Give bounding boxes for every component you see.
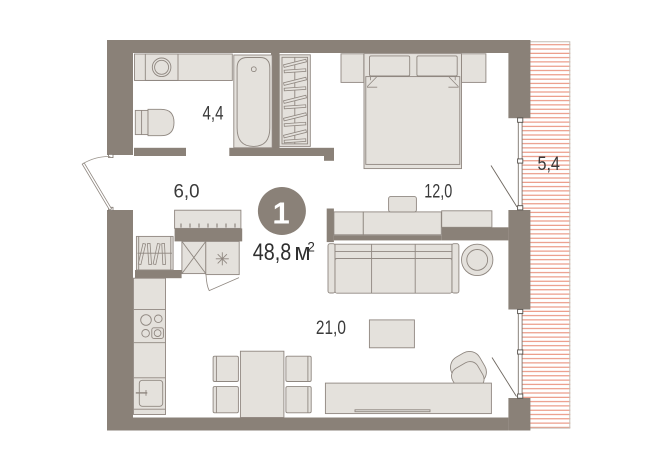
svg-text:12,0: 12,0 <box>424 181 452 203</box>
svg-text:6,0: 6,0 <box>174 181 200 203</box>
svg-text:5,4: 5,4 <box>537 153 560 175</box>
svg-text:2: 2 <box>307 240 315 255</box>
svg-text:1: 1 <box>273 196 290 230</box>
svg-text:4,4: 4,4 <box>203 103 224 125</box>
svg-text:48,8: 48,8 <box>253 240 291 266</box>
svg-text:21,0: 21,0 <box>316 317 346 339</box>
